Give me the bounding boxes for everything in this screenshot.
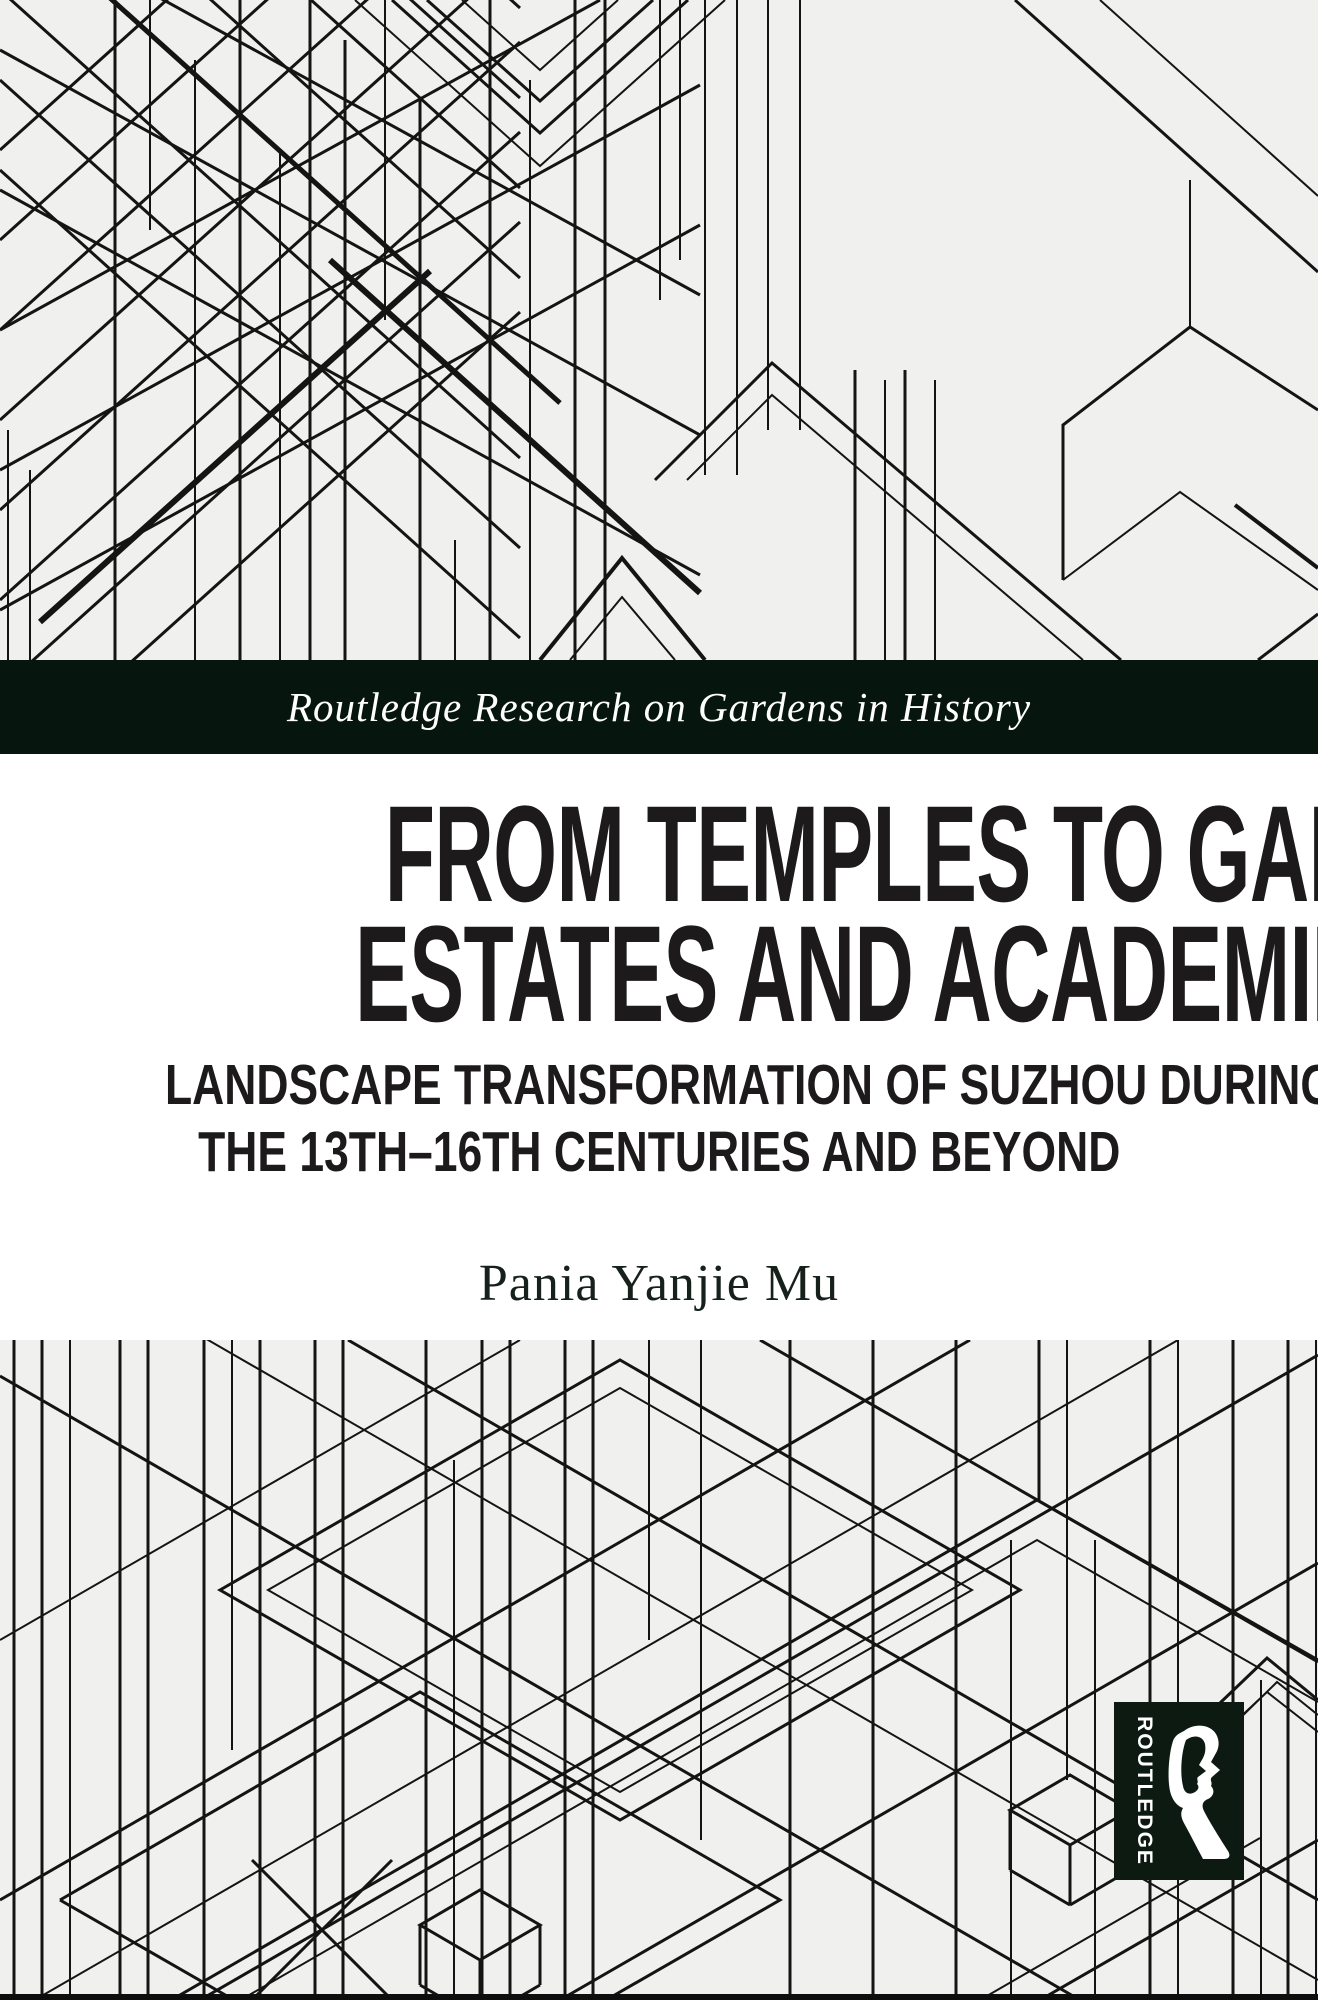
author-name: Pania Yanjie Mu <box>0 1254 1318 1313</box>
routledge-r-face-icon <box>1163 1718 1235 1864</box>
series-banner: Routledge Research on Gardens in History <box>0 660 1318 754</box>
routledge-logo-label: ROUTLEDGE <box>1132 1716 1156 1866</box>
top-geometric-pattern <box>0 0 1318 660</box>
book-subtitle-line-2: THE 13TH–16TH CENTURIES AND BEYOND <box>0 1119 1318 1200</box>
top-pattern-art <box>0 0 1318 660</box>
bottom-pattern-art <box>0 1340 1318 2000</box>
series-title: Routledge Research on Gardens in History <box>287 683 1031 731</box>
book-cover: Routledge Research on Gardens in History… <box>0 0 1318 2000</box>
bottom-edge-bar <box>0 1994 1318 2000</box>
routledge-logo: ROUTLEDGE <box>1114 1702 1244 1880</box>
bottom-geometric-pattern <box>0 1340 1318 2000</box>
